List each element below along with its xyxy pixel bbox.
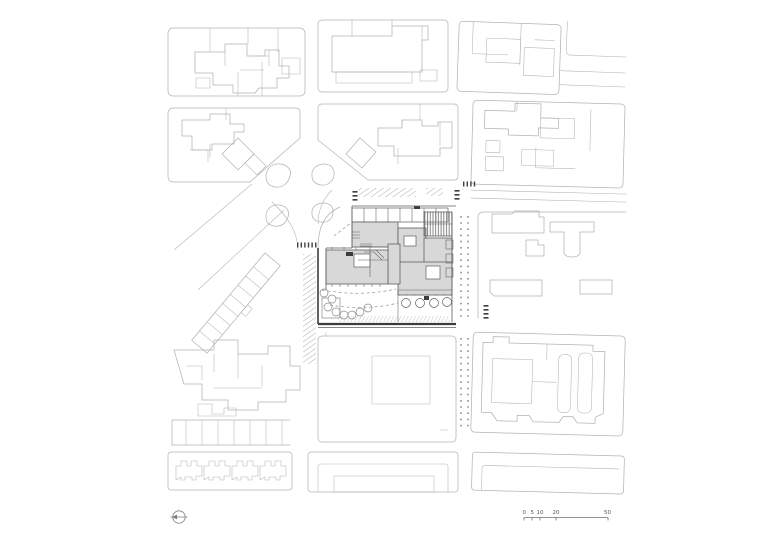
block-mid-right <box>471 100 630 202</box>
street-tree-rows <box>461 216 468 428</box>
block-lower-left <box>172 253 300 445</box>
block-mid-center <box>318 104 458 180</box>
block-top-right <box>457 17 627 97</box>
block-south-center <box>318 332 456 442</box>
block-top-left <box>168 28 305 96</box>
scale-label-5: 5 <box>531 510 535 516</box>
central-building <box>318 206 456 328</box>
hatched-strip-west <box>303 254 316 364</box>
glazed-roof <box>424 212 452 236</box>
scale-label-50: 50 <box>604 510 611 516</box>
hatched-paving-north <box>358 188 416 197</box>
roof-connector <box>388 244 400 284</box>
site-plan-drawing: 0 5 10 20 50 <box>0 0 780 551</box>
blocks-bottom-row <box>168 452 624 494</box>
scale-label-20: 20 <box>553 510 560 516</box>
garden-paving-hatch <box>338 316 450 322</box>
scale-label-10: 10 <box>537 510 544 516</box>
pavilion-grounds-east <box>478 211 626 318</box>
block-mid-left <box>168 108 300 182</box>
site-plan-page: 0 5 10 20 50 <box>0 0 780 551</box>
roof-northwest <box>352 222 398 247</box>
north-arrow-icon <box>171 511 188 523</box>
scale-label-0: 0 <box>523 510 527 516</box>
block-south-east <box>471 332 626 436</box>
hatched-paving-north-2 <box>426 188 443 196</box>
scale-bar: 0 5 10 20 50 <box>523 510 612 521</box>
block-top-center <box>318 20 448 92</box>
